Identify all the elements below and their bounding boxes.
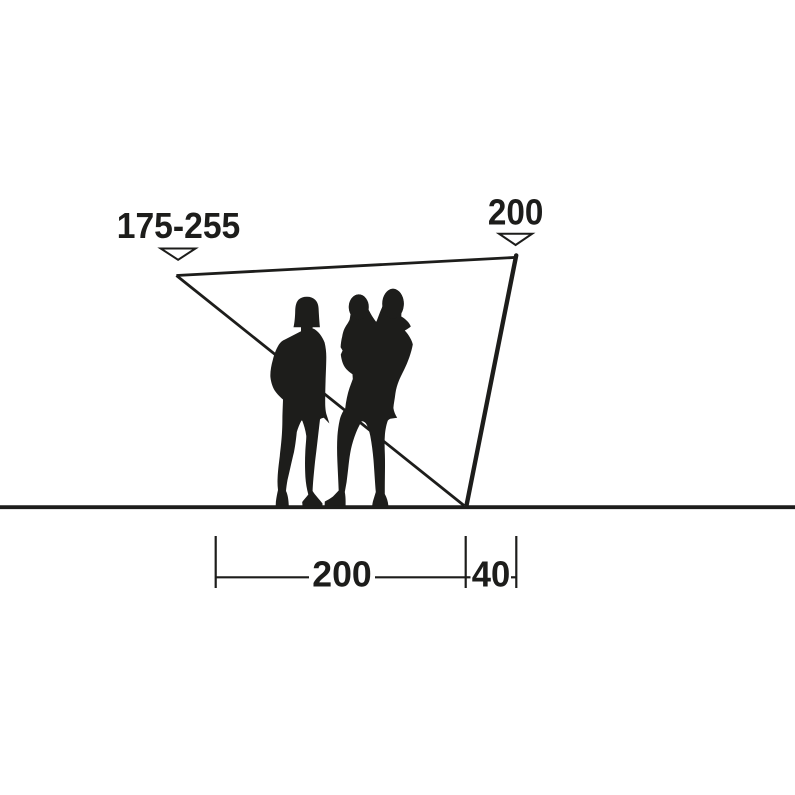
svg-text:200: 200 bbox=[488, 192, 544, 233]
svg-text:40: 40 bbox=[472, 554, 511, 595]
svg-text:175-255: 175-255 bbox=[117, 205, 241, 246]
svg-text:200: 200 bbox=[312, 554, 372, 595]
